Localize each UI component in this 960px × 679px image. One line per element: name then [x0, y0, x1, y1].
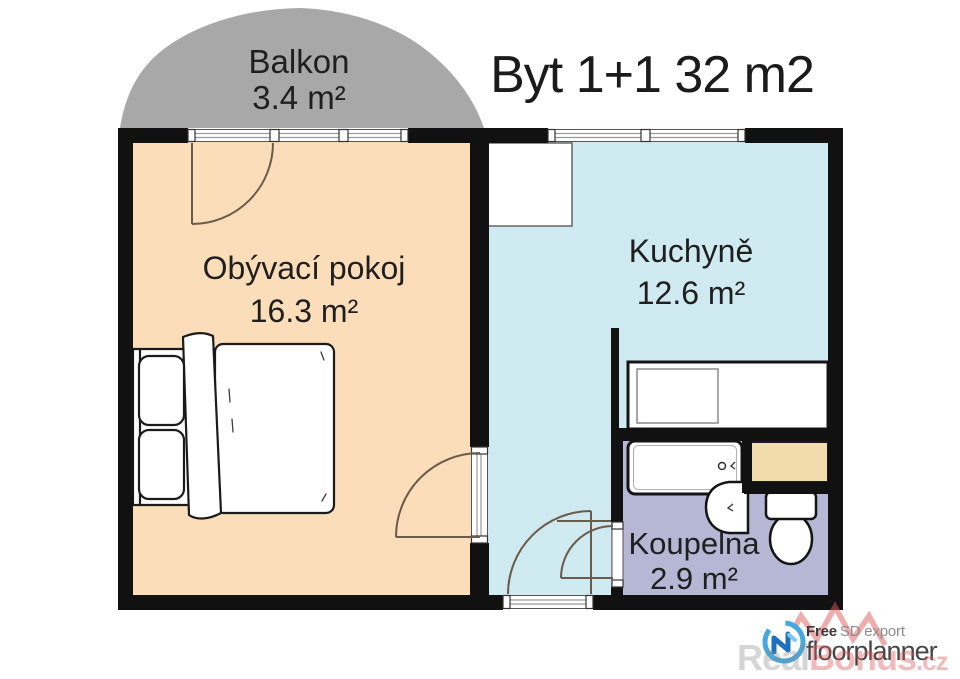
- kitchen-label: Kuchyně: [541, 235, 841, 267]
- pillow-icon: [139, 430, 184, 499]
- balcony-label: Balkon: [149, 45, 449, 78]
- balcony-window: [188, 130, 408, 142]
- sink-unit-icon: [637, 369, 718, 423]
- fridge-icon: [488, 143, 572, 226]
- bathroom-area-label: 2.9 m²: [544, 563, 844, 594]
- kitchen-area-label: 12.6 m²: [541, 277, 841, 309]
- faucet-icon: [719, 463, 726, 470]
- kitchen-window: [548, 130, 745, 142]
- living-room-label: Obývací pokoj: [154, 252, 454, 284]
- bathroom-label: Koupelna: [544, 528, 844, 559]
- floorplan-page: Byt 1+1 32 m2 Balkon 3.4 m² Obývací poko…: [0, 0, 960, 679]
- living-room-area-label: 16.3 m²: [154, 295, 454, 327]
- page-title: Byt 1+1 32 m2: [460, 49, 844, 101]
- entrance-doorway: [503, 596, 593, 609]
- double-bed-icon: [133, 333, 334, 518]
- pillow-icon: [139, 356, 184, 425]
- washing-machine-icon: [744, 442, 828, 482]
- balcony-area-label: 3.4 m²: [149, 81, 449, 114]
- living-room-doorway: [472, 447, 488, 543]
- floorplanner-wordmark: floorplanner: [806, 638, 960, 665]
- kitchen-counter-icon: [628, 362, 828, 429]
